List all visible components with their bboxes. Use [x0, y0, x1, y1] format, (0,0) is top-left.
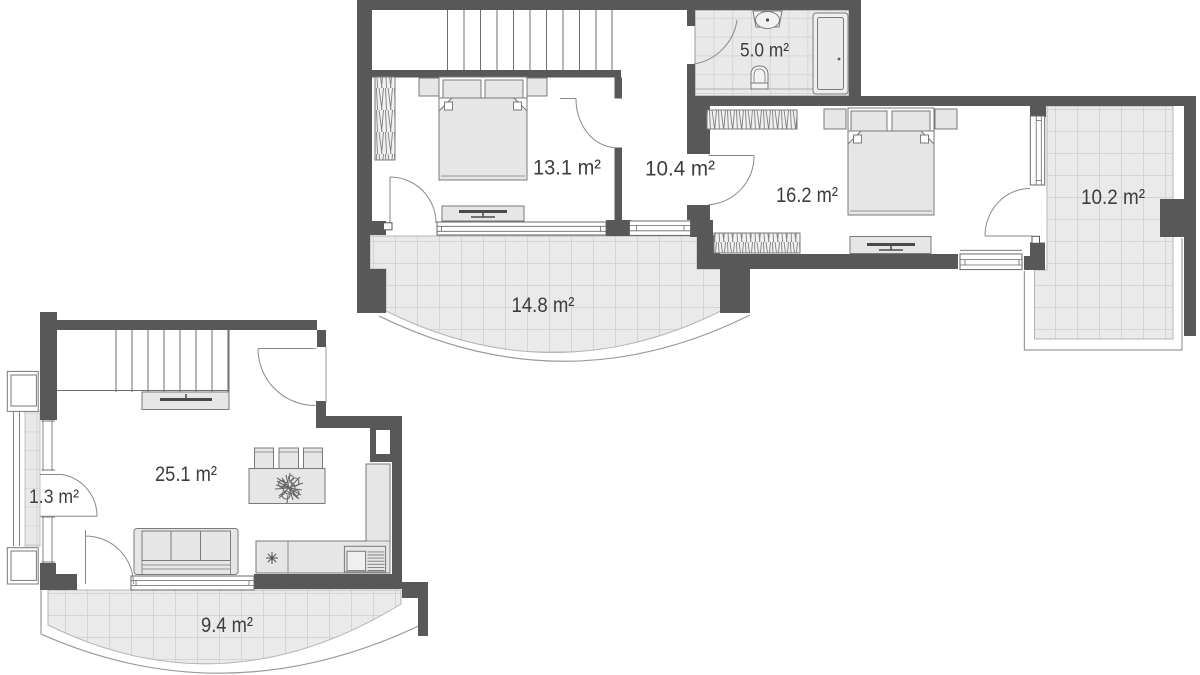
svg-text:5.0 m²: 5.0 m² — [740, 41, 789, 62]
svg-text:25.1 m²: 25.1 m² — [155, 463, 217, 486]
svg-text:10.2 m²: 10.2 m² — [1081, 186, 1145, 209]
svg-text:16.2 m²: 16.2 m² — [776, 184, 838, 207]
svg-text:1.3 m²: 1.3 m² — [29, 487, 79, 508]
svg-text:13.1 m²: 13.1 m² — [533, 157, 601, 180]
svg-text:9.4 m²: 9.4 m² — [201, 614, 253, 637]
svg-text:10.4 m²: 10.4 m² — [645, 158, 715, 181]
svg-text:14.8 m²: 14.8 m² — [512, 294, 575, 317]
